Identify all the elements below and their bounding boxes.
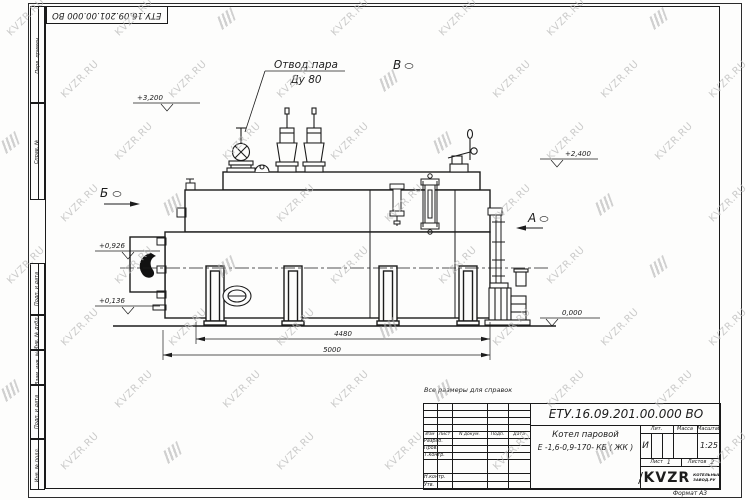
- reference-note: Все размеры для справок: [424, 386, 512, 394]
- logo-cell: KVZR КОТЕЛЬНЫЙ ЗАВОД.РУ: [640, 466, 721, 490]
- elevation-2400: [540, 159, 598, 167]
- kvzr-logo-subtext: КОТЕЛЬНЫЙ ЗАВОД.РУ: [693, 473, 721, 482]
- safety-valve-2: [303, 108, 325, 172]
- manhole: [223, 286, 251, 306]
- view-label-v: В: [393, 58, 401, 72]
- drawing-sheet: Перв. примен. Справ. № Подп. и дата Инв.…: [0, 0, 750, 500]
- row-prov: Пров.: [423, 445, 452, 452]
- row-nkontr: Н.контр.: [423, 473, 452, 481]
- view-b-ref-circle: [113, 192, 121, 197]
- kvzr-logo-text: KVZR: [644, 470, 691, 486]
- lit-value: И: [640, 433, 651, 458]
- elevation-0000-label: 0,000: [562, 309, 583, 317]
- steam-outlet-callout: Отвод пара Ду 80: [245, 59, 345, 132]
- format-label: Формат А3: [655, 490, 725, 497]
- sheet-value: 1: [667, 459, 671, 466]
- elevation-0136-label: +0,136: [99, 297, 125, 305]
- elevation-3200-label: +3,200: [137, 94, 163, 102]
- col-header-izm: Изм: [423, 431, 437, 438]
- steam-valve: [227, 128, 255, 172]
- callout-line2: Ду 80: [289, 74, 321, 86]
- elevation-3200: [133, 103, 200, 111]
- row-razrab: Разраб.: [423, 438, 452, 445]
- sheets-value: 2: [710, 459, 714, 466]
- elevation-2400-label: +2,400: [565, 150, 591, 158]
- mass-header: Масса: [673, 425, 697, 433]
- row-utv: Утв.: [423, 481, 452, 489]
- dimension-5000: [163, 330, 490, 360]
- elevation-0000: [540, 318, 600, 326]
- view-label-a: А: [527, 211, 536, 225]
- row-tkontr: Т.контр.: [423, 452, 452, 459]
- view-v-ref-circle: [405, 64, 413, 69]
- elevation-0136: [95, 306, 160, 314]
- doc-number: ЕТУ.16.09.201.00.000 ВО: [531, 403, 721, 425]
- safety-valve-1: [276, 108, 298, 172]
- col-header-ndoc: N докум.: [452, 431, 487, 438]
- col-header-data: Дата: [508, 431, 530, 438]
- view-arrow-a: [516, 225, 543, 230]
- product-name-line2: Е -1,6-0,9-170- КБ ( ЖК ): [531, 441, 640, 453]
- sheet-label: Лист: [650, 459, 663, 465]
- dim-4480-label: 4480: [334, 330, 352, 338]
- view-label-b: Б: [100, 186, 108, 200]
- scale-header: Масштаб: [697, 425, 721, 433]
- sheets-cell: Листов 2: [681, 458, 721, 466]
- col-header-list: Лист: [437, 431, 452, 438]
- view-a-ref-circle: [540, 217, 548, 222]
- dome-fitting: [255, 165, 269, 172]
- lever-safety-valve: [448, 130, 477, 173]
- col-header-podp: Подп.: [487, 431, 508, 438]
- view-arrow-b: [104, 201, 140, 206]
- callout-line1: Отвод пара: [274, 59, 338, 71]
- product-name-line1: Котел паровой: [531, 428, 640, 442]
- elevation-0926-label: +0,926: [99, 242, 125, 250]
- sheets-label: Листов: [688, 459, 707, 465]
- feed-pump: [485, 269, 530, 325]
- lit-header: Лит.: [640, 425, 673, 433]
- scale-value: 1:25: [697, 433, 721, 458]
- dim-5000-label: 5000: [323, 346, 341, 354]
- sheet-cell: Лист 1: [640, 458, 681, 466]
